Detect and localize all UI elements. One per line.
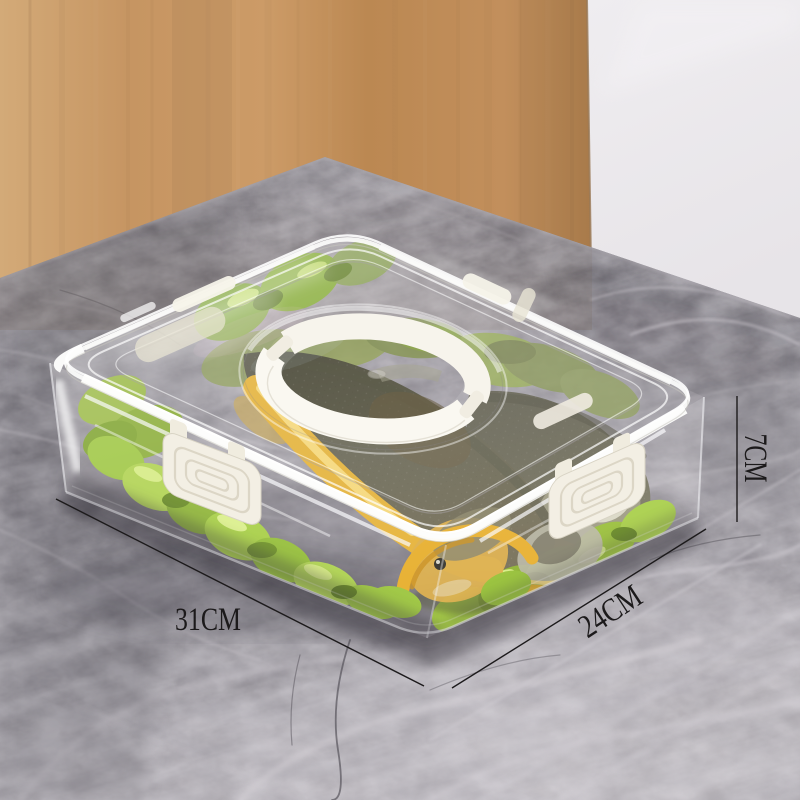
svg-text:7CM: 7CM bbox=[737, 434, 773, 483]
svg-text:31CM: 31CM bbox=[175, 602, 241, 638]
